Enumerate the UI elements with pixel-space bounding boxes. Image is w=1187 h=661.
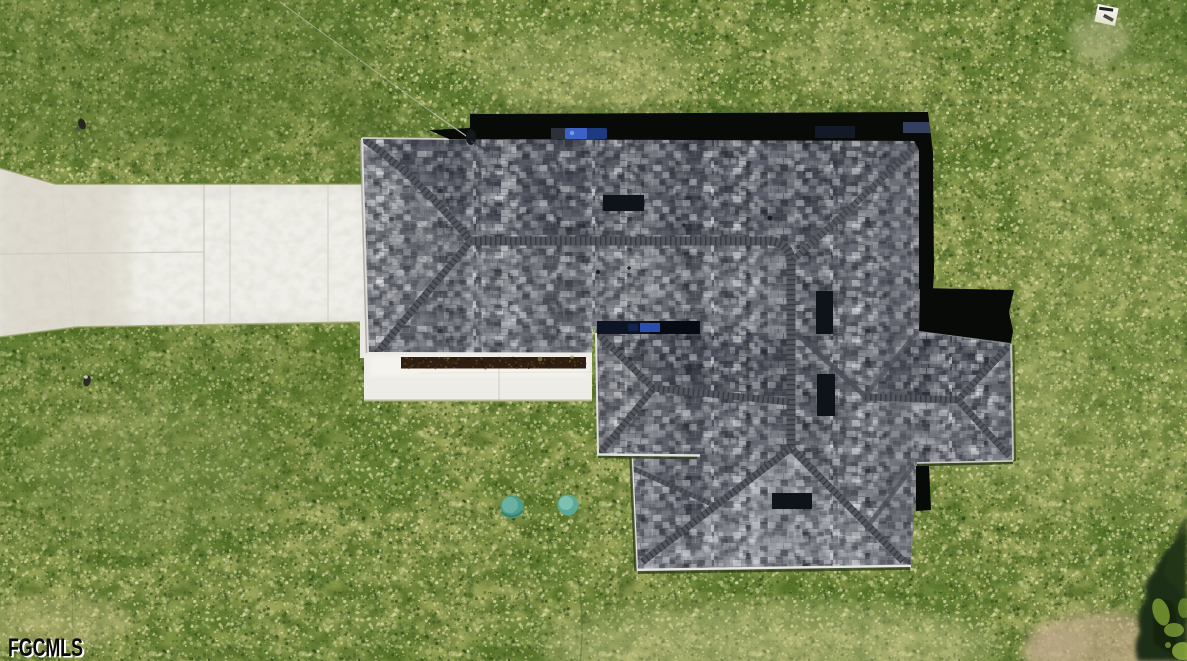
svg-text:FGCMLS: FGCMLS bbox=[8, 634, 83, 661]
